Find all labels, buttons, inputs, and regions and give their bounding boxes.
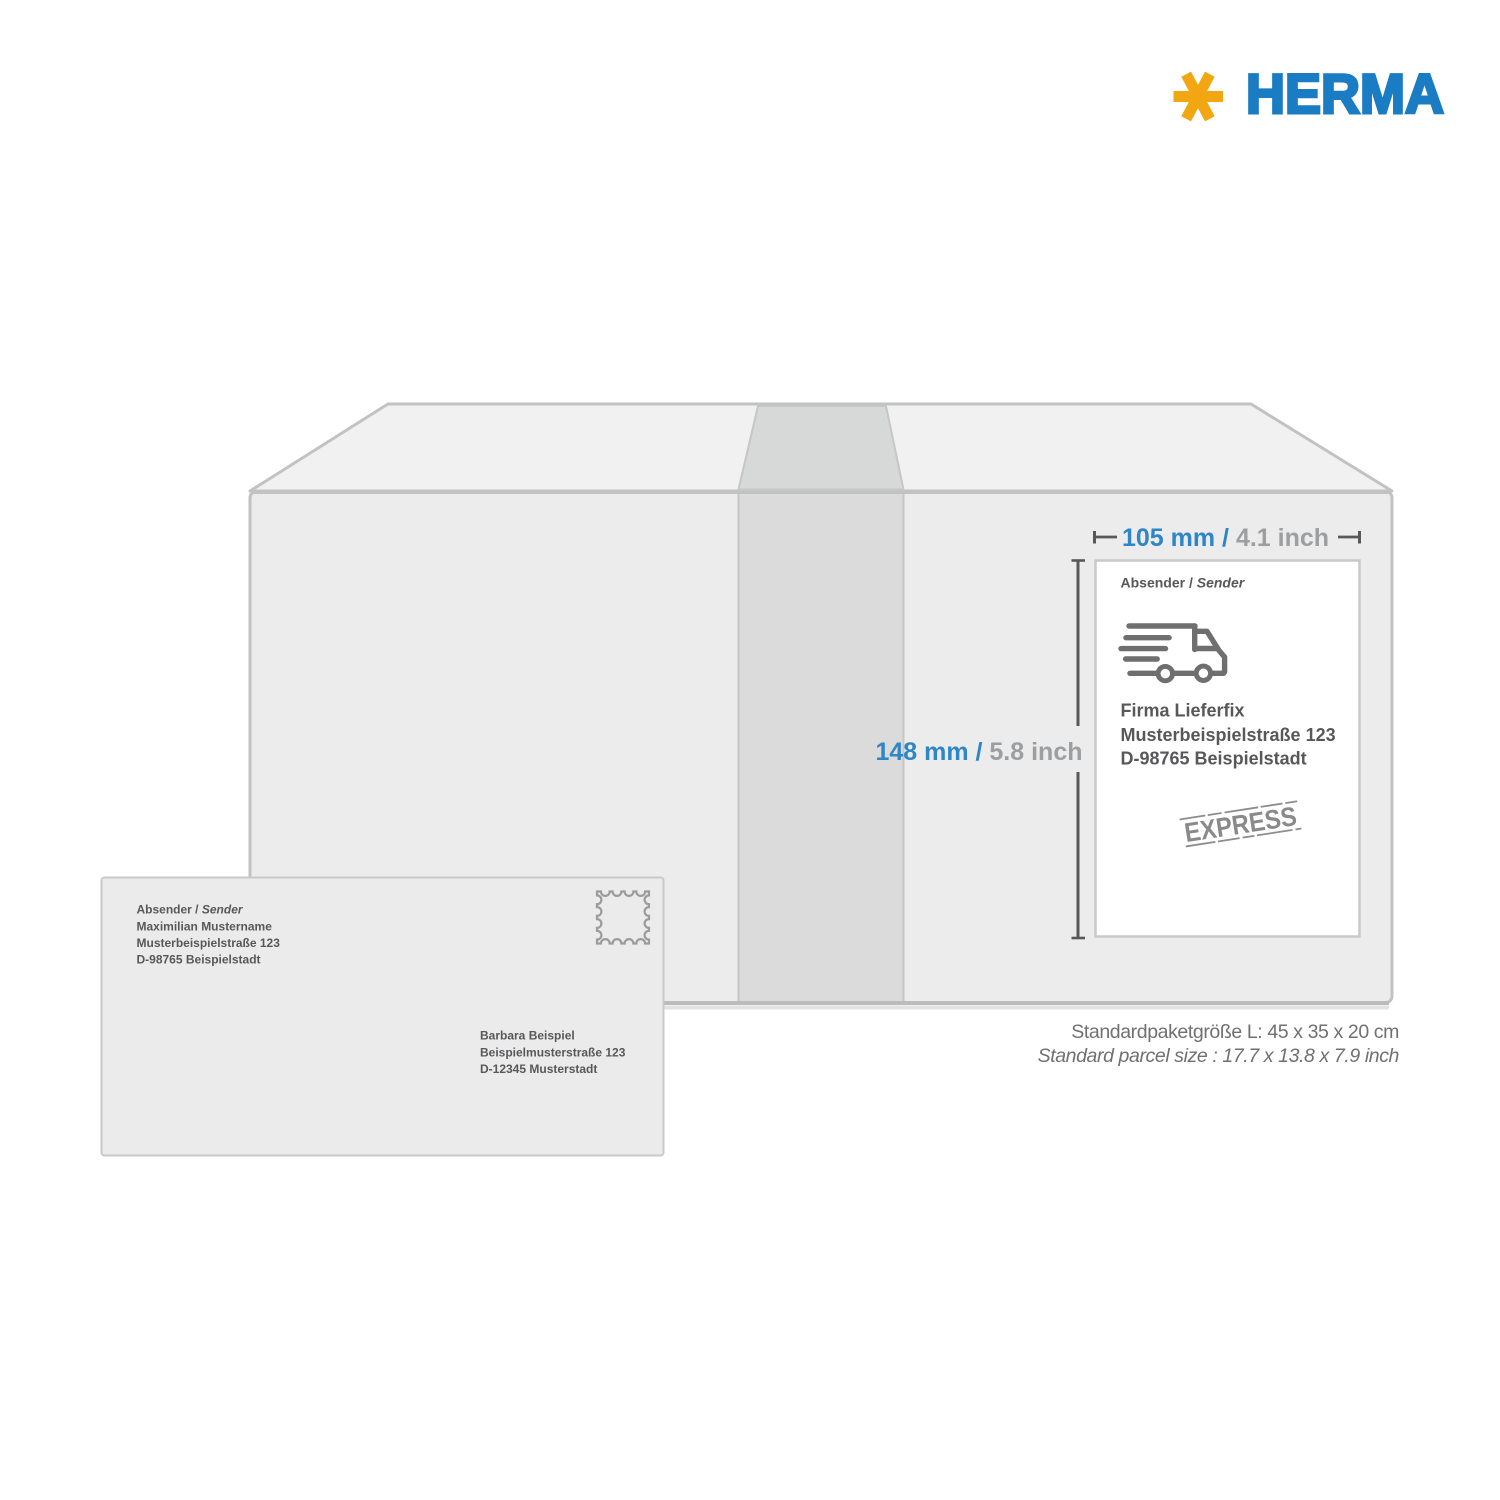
svg-text:148 mm / 5.8 inch: 148 mm / 5.8 inch [875, 738, 1082, 766]
svg-text:Maximilian Mustername: Maximilian Mustername [137, 920, 273, 934]
svg-text:D-12345 Musterstadt: D-12345 Musterstadt [480, 1062, 597, 1076]
svg-text:Standard parcel size : 17.7 x: Standard parcel size : 17.7 x 13.8 x 7.9… [1038, 1045, 1399, 1067]
svg-text:D-98765 Beispielstadt: D-98765 Beispielstadt [1121, 749, 1307, 769]
svg-text:Absender / Sender: Absender / Sender [1121, 574, 1246, 590]
svg-text:HERMA: HERMA [1246, 62, 1444, 125]
svg-text:Barbara Beispiel: Barbara Beispiel [480, 1029, 575, 1043]
svg-text:Beispielmusterstraße 123: Beispielmusterstraße 123 [480, 1046, 626, 1060]
svg-text:D-98765 Beispielstadt: D-98765 Beispielstadt [137, 953, 261, 967]
svg-text:Absender / Sender: Absender / Sender [137, 903, 244, 917]
svg-text:Firma Lieferfix: Firma Lieferfix [1121, 701, 1245, 721]
svg-text:Musterbeispielstraße 123: Musterbeispielstraße 123 [137, 936, 281, 950]
svg-text:Musterbeispielstraße 123: Musterbeispielstraße 123 [1121, 725, 1336, 745]
svg-text:105 mm / 4.1 inch: 105 mm / 4.1 inch [1122, 524, 1329, 552]
svg-text:Standardpaketgröße L: 45 x 35: Standardpaketgröße L: 45 x 35 x 20 cm [1071, 1021, 1399, 1043]
